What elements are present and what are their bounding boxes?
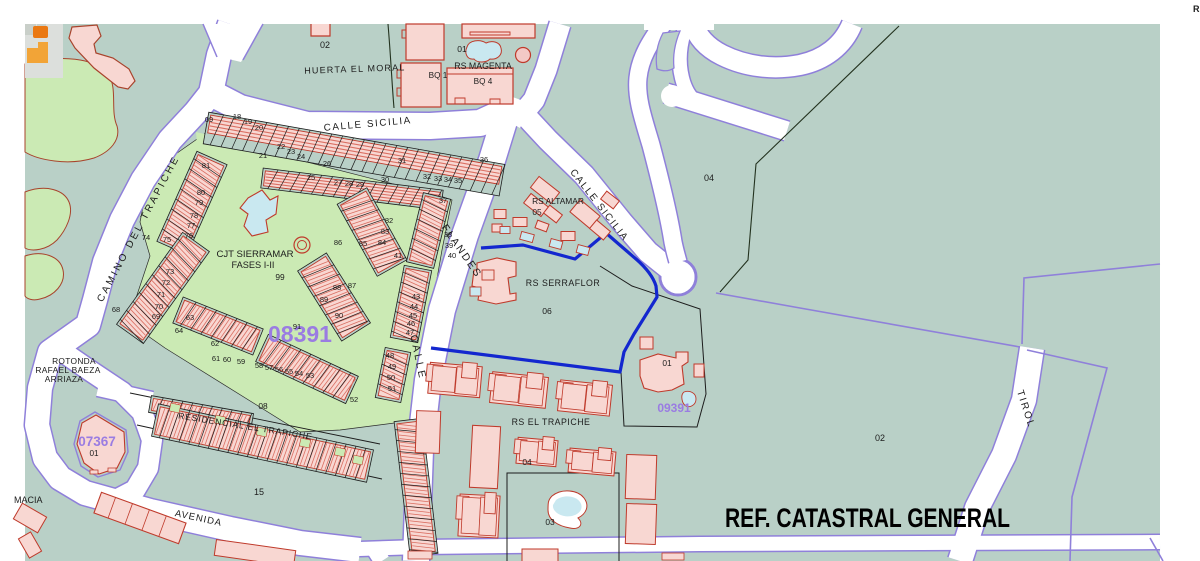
svg-text:09391: 09391 xyxy=(657,401,691,415)
svg-text:33: 33 xyxy=(434,174,442,183)
svg-text:05: 05 xyxy=(532,207,542,217)
svg-text:36: 36 xyxy=(480,155,488,164)
svg-text:31: 31 xyxy=(398,156,406,165)
svg-text:47: 47 xyxy=(406,328,414,337)
svg-text:FASES I-II: FASES I-II xyxy=(232,260,275,270)
svg-text:19: 19 xyxy=(244,117,252,126)
svg-text:38: 38 xyxy=(444,230,452,239)
svg-text:91: 91 xyxy=(293,322,301,331)
svg-text:01: 01 xyxy=(662,358,672,368)
svg-text:03: 03 xyxy=(545,517,555,527)
svg-text:81: 81 xyxy=(202,161,210,170)
svg-text:30: 30 xyxy=(381,175,389,184)
svg-text:60: 60 xyxy=(223,355,231,364)
svg-text:20: 20 xyxy=(255,123,263,132)
svg-text:82: 82 xyxy=(385,216,393,225)
svg-text:02: 02 xyxy=(875,433,885,443)
svg-text:39: 39 xyxy=(445,241,453,250)
svg-text:BQ 1: BQ 1 xyxy=(429,71,448,80)
svg-text:54: 54 xyxy=(295,369,303,378)
svg-text:79: 79 xyxy=(195,198,203,207)
svg-text:28: 28 xyxy=(345,179,353,188)
svg-text:55: 55 xyxy=(285,367,293,376)
svg-text:58: 58 xyxy=(255,361,263,370)
svg-text:77: 77 xyxy=(187,221,195,230)
svg-text:04: 04 xyxy=(704,173,714,183)
svg-text:ARRIAZA: ARRIAZA xyxy=(45,374,84,384)
svg-text:48: 48 xyxy=(386,351,394,360)
svg-text:49: 49 xyxy=(388,362,396,371)
svg-text:35: 35 xyxy=(454,176,462,185)
svg-text:71: 71 xyxy=(157,290,165,299)
svg-text:85: 85 xyxy=(359,239,367,248)
svg-text:61: 61 xyxy=(212,354,220,363)
svg-text:62: 62 xyxy=(211,339,219,348)
svg-text:41: 41 xyxy=(394,251,402,260)
svg-text:15: 15 xyxy=(254,487,264,497)
svg-text:04: 04 xyxy=(522,457,532,467)
svg-text:73: 73 xyxy=(166,267,174,276)
svg-text:09: 09 xyxy=(205,115,213,124)
svg-text:84: 84 xyxy=(378,238,386,247)
svg-text:07367: 07367 xyxy=(78,434,116,449)
svg-text:40: 40 xyxy=(448,251,456,260)
svg-text:44: 44 xyxy=(410,302,418,311)
svg-text:74: 74 xyxy=(142,233,150,242)
svg-text:75: 75 xyxy=(163,235,171,244)
svg-text:90: 90 xyxy=(335,311,343,320)
svg-text:RS SERRAFLOR: RS SERRAFLOR xyxy=(526,278,600,288)
svg-text:89: 89 xyxy=(320,295,328,304)
svg-text:34: 34 xyxy=(444,175,452,184)
svg-text:52: 52 xyxy=(350,395,358,404)
svg-text:37: 37 xyxy=(439,196,447,205)
svg-text:78: 78 xyxy=(190,211,198,220)
svg-text:BQ 4: BQ 4 xyxy=(474,77,493,86)
svg-text:72: 72 xyxy=(162,278,170,287)
svg-text:43: 43 xyxy=(412,292,420,301)
svg-text:REF. CATASTRAL GENERAL: REF. CATASTRAL GENERAL xyxy=(725,503,1010,533)
svg-text:22: 22 xyxy=(277,142,285,151)
svg-text:24: 24 xyxy=(297,152,305,161)
svg-text:MACIA: MACIA xyxy=(14,495,43,505)
svg-text:83: 83 xyxy=(381,227,389,236)
svg-text:80: 80 xyxy=(197,188,205,197)
svg-text:RS EL TRAPICHE: RS EL TRAPICHE xyxy=(512,417,591,427)
svg-text:26: 26 xyxy=(323,159,331,168)
svg-text:27: 27 xyxy=(334,178,342,187)
svg-text:63: 63 xyxy=(186,313,194,322)
svg-text:56: 56 xyxy=(275,365,283,374)
svg-text:25: 25 xyxy=(307,173,315,182)
svg-text:RS MAGENTA: RS MAGENTA xyxy=(454,61,512,71)
svg-text:RS ALTAMAR: RS ALTAMAR xyxy=(532,196,584,206)
svg-text:08: 08 xyxy=(258,401,268,411)
svg-text:87: 87 xyxy=(348,281,356,290)
svg-text:CJT SIERRAMAR: CJT SIERRAMAR xyxy=(216,249,293,260)
svg-text:53: 53 xyxy=(306,371,314,380)
svg-text:02: 02 xyxy=(320,40,330,50)
svg-text:32: 32 xyxy=(423,172,431,181)
svg-text:57: 57 xyxy=(265,363,273,372)
svg-text:29: 29 xyxy=(356,180,364,189)
svg-text:88: 88 xyxy=(333,283,341,292)
svg-text:50: 50 xyxy=(387,373,395,382)
svg-text:86: 86 xyxy=(334,238,342,247)
svg-text:01: 01 xyxy=(457,44,467,54)
svg-text:68: 68 xyxy=(112,305,120,314)
svg-text:69: 69 xyxy=(152,312,160,321)
svg-text:64: 64 xyxy=(175,326,183,335)
svg-text:70: 70 xyxy=(155,302,163,311)
svg-text:76: 76 xyxy=(185,231,193,240)
svg-text:99: 99 xyxy=(275,272,285,282)
svg-text:59: 59 xyxy=(237,357,245,366)
svg-text:21: 21 xyxy=(259,151,267,160)
svg-text:23: 23 xyxy=(287,147,295,156)
svg-text:01: 01 xyxy=(89,449,99,458)
svg-text:06: 06 xyxy=(542,306,552,316)
svg-text:51: 51 xyxy=(388,384,396,393)
svg-text:18: 18 xyxy=(233,112,241,121)
svg-text:46: 46 xyxy=(407,319,415,328)
svg-text:R: R xyxy=(1193,4,1200,14)
